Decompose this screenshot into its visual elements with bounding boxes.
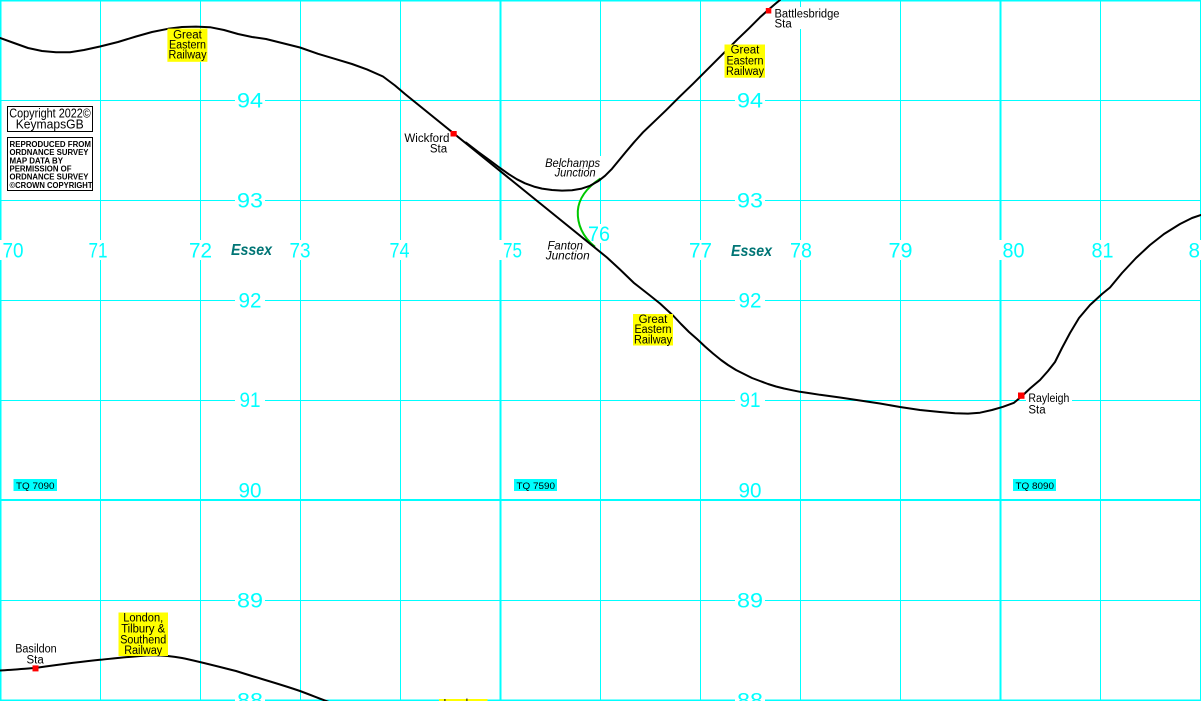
svg-text:89: 89 (237, 590, 263, 613)
svg-text:75: 75 (503, 240, 522, 263)
svg-text:71: 71 (89, 240, 108, 263)
svg-text:Sta: Sta (775, 19, 793, 31)
svg-text:81: 81 (1092, 240, 1114, 263)
svg-text:TQ 7090: TQ 7090 (16, 481, 55, 492)
svg-text:92: 92 (239, 290, 262, 313)
svg-text:72: 72 (189, 240, 212, 263)
svg-text:©CROWN COPYRIGHT: ©CROWN COPYRIGHT (10, 181, 93, 190)
svg-text:77: 77 (689, 240, 712, 263)
svg-text:82: 82 (1189, 240, 1201, 263)
svg-text:93: 93 (737, 190, 763, 213)
svg-text:Railway: Railway (634, 335, 672, 347)
svg-text:78: 78 (790, 240, 812, 263)
svg-text:Railway: Railway (124, 645, 162, 657)
svg-text:Junction: Junction (554, 166, 596, 180)
svg-text:76: 76 (588, 223, 610, 246)
svg-text:91: 91 (740, 389, 761, 412)
svg-text:KeymapsGB: KeymapsGB (16, 117, 84, 132)
svg-text:Essex: Essex (731, 243, 773, 260)
svg-text:Rayleigh: Rayleigh (1028, 393, 1069, 405)
svg-text:Junction: Junction (545, 248, 590, 262)
svg-text:93: 93 (237, 190, 263, 213)
svg-text:Railway: Railway (726, 66, 764, 78)
svg-text:90: 90 (239, 479, 262, 502)
svg-text:Sta: Sta (430, 143, 448, 155)
svg-text:80: 80 (1003, 240, 1025, 263)
svg-text:Sta: Sta (1028, 405, 1046, 417)
svg-text:91: 91 (240, 389, 261, 412)
svg-text:Railway: Railway (169, 49, 207, 61)
svg-text:92: 92 (739, 290, 762, 313)
svg-text:79: 79 (889, 240, 913, 263)
svg-text:73: 73 (290, 240, 311, 263)
svg-text:88: 88 (237, 690, 263, 701)
svg-text:Essex: Essex (231, 242, 273, 259)
svg-text:70: 70 (3, 240, 24, 263)
svg-text:89: 89 (737, 590, 763, 613)
svg-text:TQ 8090: TQ 8090 (1016, 481, 1055, 492)
svg-text:88: 88 (737, 690, 763, 701)
svg-text:90: 90 (739, 479, 762, 502)
svg-text:TQ 7590: TQ 7590 (517, 481, 556, 492)
svg-text:94: 94 (237, 90, 263, 113)
svg-text:74: 74 (390, 240, 410, 263)
svg-text:Sta: Sta (27, 655, 45, 667)
svg-text:94: 94 (737, 90, 763, 113)
